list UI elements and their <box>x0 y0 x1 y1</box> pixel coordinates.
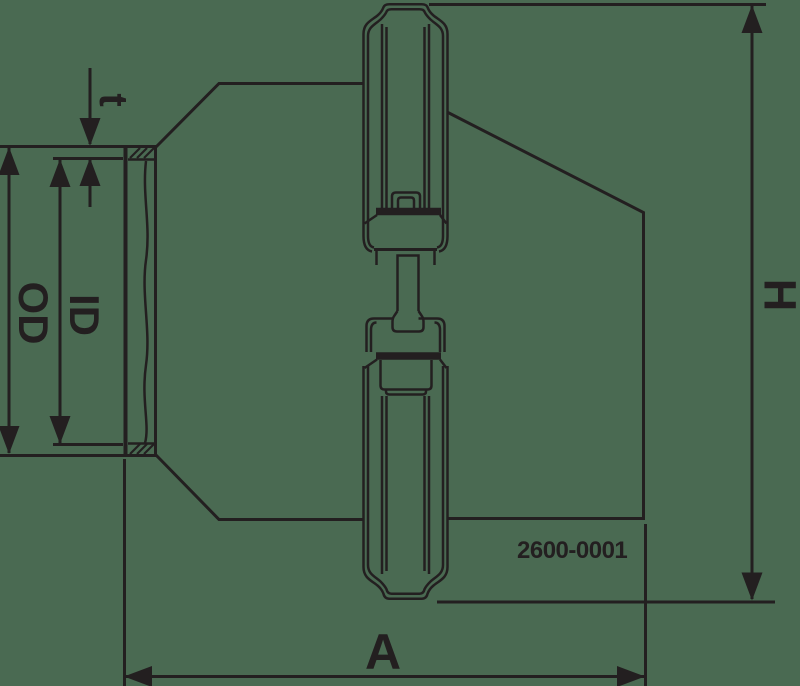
dim-label-a: A <box>365 627 401 677</box>
dimension-h <box>429 5 775 603</box>
dim-label-od: OD <box>12 281 54 344</box>
bolt-assembly <box>393 256 424 332</box>
dim-label-t: t <box>93 93 133 106</box>
dim-label-id: ID <box>63 294 105 336</box>
dimension-t <box>80 68 101 207</box>
upper-bolt-boss <box>392 193 420 209</box>
technical-drawing-canvas: t OD ID H A 2600-0001 <box>0 0 800 686</box>
flange-section <box>126 147 156 456</box>
break-line-wavy <box>144 161 147 443</box>
lower-bolt-boss <box>381 360 432 395</box>
body-outline <box>155 84 644 520</box>
part-number: 2600-0001 <box>517 539 627 563</box>
coupling-clamp <box>364 4 448 599</box>
dim-label-h: H <box>758 279 800 312</box>
